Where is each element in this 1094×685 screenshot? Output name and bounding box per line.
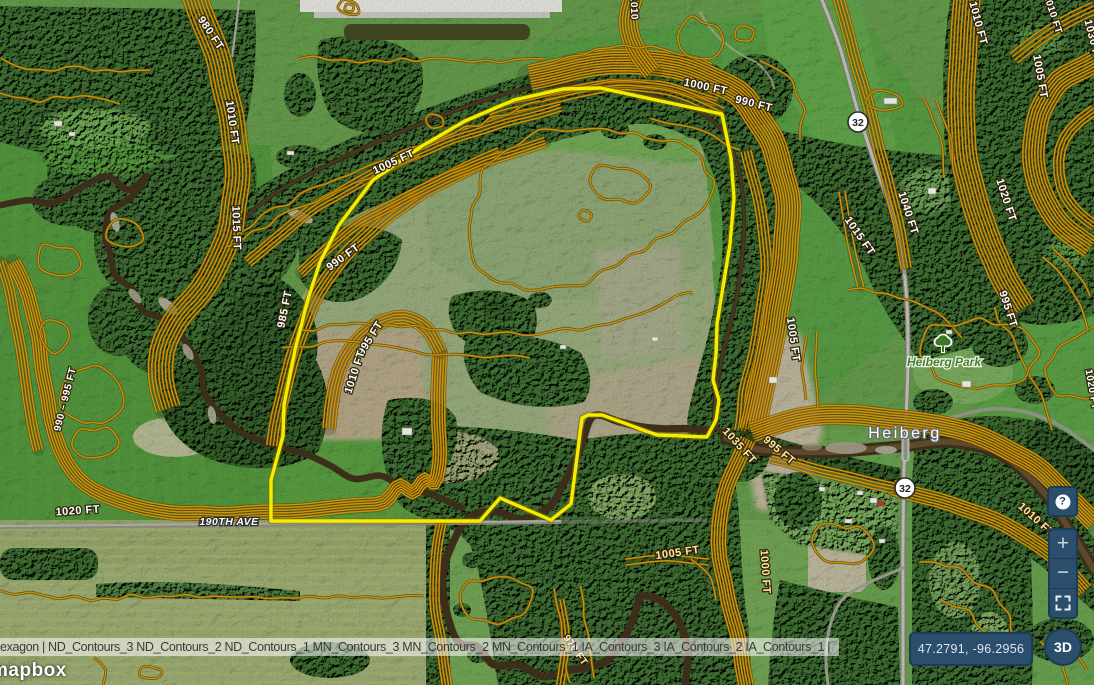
svg-text:Heiberg Park: Heiberg Park bbox=[907, 355, 982, 369]
svg-text:32: 32 bbox=[899, 483, 911, 495]
svg-text:Heiberg: Heiberg bbox=[868, 425, 942, 442]
svg-text:1015 FT: 1015 FT bbox=[229, 205, 243, 250]
svg-text:190TH AVE: 190TH AVE bbox=[199, 516, 259, 528]
svg-text:32: 32 bbox=[852, 117, 864, 129]
svg-text:1010: 1010 bbox=[628, 0, 640, 20]
